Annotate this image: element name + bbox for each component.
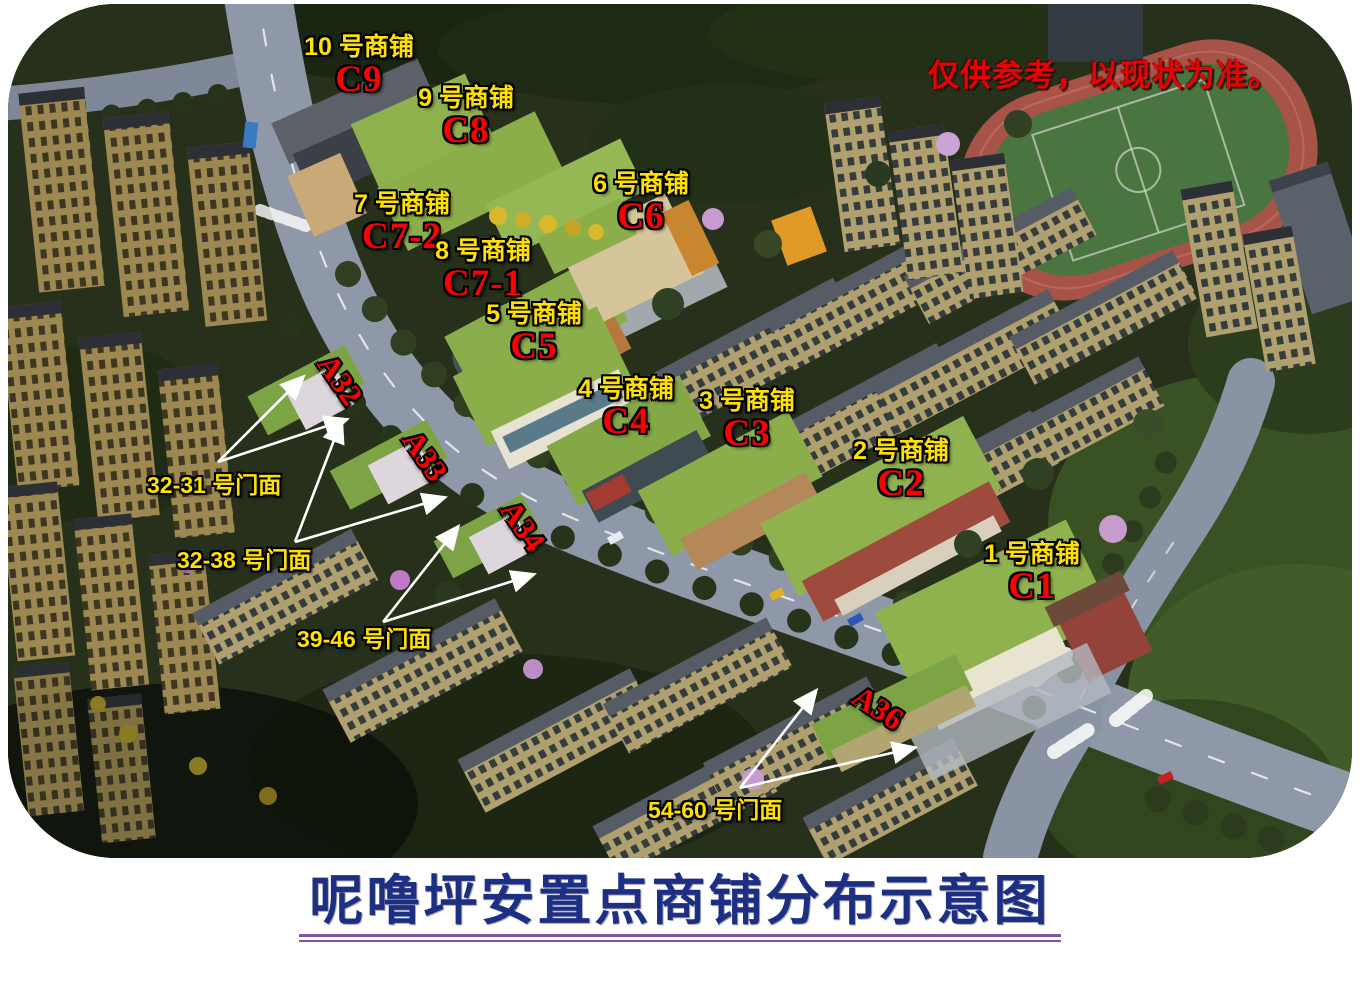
shop-code-label: C7-1 (398, 265, 568, 304)
disclaimer-text: 仅供参考，以现状为准。 (928, 50, 1280, 95)
shop-label-c6: 6 号商铺 C6 (556, 171, 726, 237)
shop-label-c8: 9 号商铺 C8 (381, 85, 551, 151)
arrow-39-46-b (383, 575, 532, 622)
shop-number-label: 10 号商铺 (274, 34, 444, 60)
shop-code-label: C6 (556, 198, 726, 237)
shop-code-label: C3 (662, 415, 832, 454)
shop-number-label: 1 号商铺 (947, 541, 1117, 567)
shop-label-c1: 1 号商铺 C1 (947, 541, 1117, 607)
shop-number-label: 6 号商铺 (556, 171, 726, 197)
shop-code-label: C8 (381, 112, 551, 151)
shop-number-label: 3 号商铺 (662, 388, 832, 414)
storefront-label-39-46: 39-46 号门面 (297, 620, 431, 654)
storefront-label-32-38: 32-38 号门面 (177, 541, 311, 575)
aerial-rendering: 10 号商铺 C9 9 号商铺 C8 6 号商铺 C6 7 号商铺 C7-2 8… (8, 4, 1352, 858)
page-title: 呢噜坪安置点商铺分布示意图 (0, 872, 1360, 931)
caption: 呢噜坪安置点商铺分布示意图 (0, 872, 1360, 942)
title-underline (299, 934, 1061, 942)
shop-label-c5: 5 号商铺 C5 (449, 301, 619, 367)
shop-label-c2: 2 号商铺 C2 (816, 438, 986, 504)
arrow-32-38-b (295, 498, 443, 542)
page: { "disclaimer": "仅供参考，以现状为准。", "title": … (0, 0, 1360, 983)
shop-label-c3: 3 号商铺 C3 (662, 388, 832, 454)
arrow-32-31-b (218, 420, 345, 462)
arrow-32-38-a (295, 422, 341, 542)
shop-label-c7-1: 8 号商铺 C7-1 (398, 238, 568, 304)
shop-number-label: 2 号商铺 (816, 438, 986, 464)
arrow-39-46-a (383, 528, 457, 622)
shop-number-label: 7 号商铺 (317, 191, 487, 217)
shop-number-label: 5 号商铺 (449, 301, 619, 327)
shop-code-label: C1 (947, 568, 1117, 607)
storefront-label-54-60: 54-60 号门面 (648, 791, 782, 825)
storefront-label-32-31: 32-31 号门面 (147, 466, 281, 500)
shop-number-label: 8 号商铺 (398, 238, 568, 264)
shop-number-label: 9 号商铺 (381, 85, 551, 111)
shop-code-label: C5 (449, 328, 619, 367)
shop-code-label: C2 (816, 465, 986, 504)
